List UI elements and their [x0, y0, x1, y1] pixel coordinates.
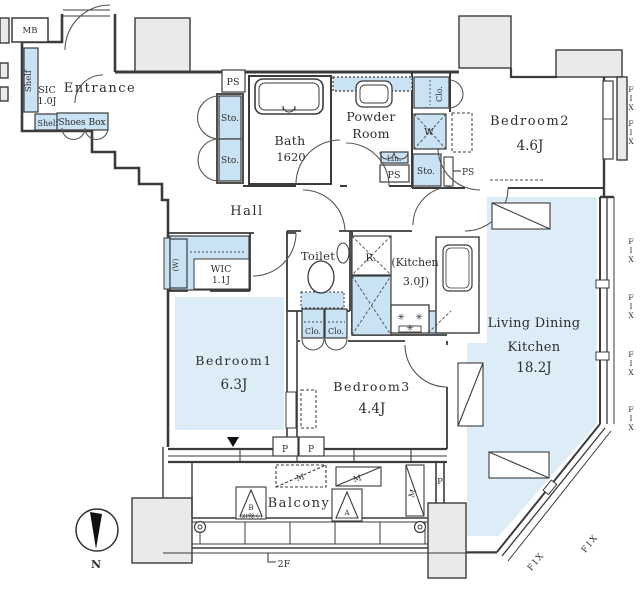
powder-room-label-2: Room: [352, 126, 390, 141]
bedroom3-label: Bedroom3: [333, 379, 410, 394]
wall-strip-right: [617, 77, 627, 160]
column-balcony-right: [428, 503, 466, 578]
pipe-space-1-label: PS: [227, 77, 240, 88]
hall-corridor-door-arc: [303, 190, 345, 232]
kitchen-label-1: (Kitchen: [391, 256, 438, 269]
storage-3-label: Sto.: [417, 167, 435, 177]
kitchen-label-2: 3.0J): [403, 275, 429, 288]
pipe-space-3-label: PS: [462, 168, 474, 178]
balcony-b-note: (2F除く): [240, 512, 263, 520]
wall-stub-left-1: [0, 18, 9, 43]
ldk-window-joint-1: [596, 280, 609, 288]
bedroom1-size-label: 6.3J: [221, 377, 248, 393]
wall-stub-left-3: [0, 87, 8, 101]
bedroom2-dashed-area: [452, 113, 472, 152]
pillar-3-label: P: [437, 477, 443, 487]
fix-label-ldk-1: FIX: [628, 237, 634, 264]
bath-size-label: 1620: [276, 150, 305, 164]
ldk-window-joint-2: [596, 352, 609, 360]
sic-label: SIC: [38, 85, 56, 96]
corridor-powder-door-arc: [413, 187, 451, 225]
bedroom2-closet-door-arc: [449, 80, 463, 108]
pipe-space-2-label: PS: [388, 170, 401, 181]
bedroom2-closet-label: Clo.: [435, 86, 444, 102]
column-top-right-edge: [556, 50, 622, 77]
floor-label-bracket: [268, 553, 276, 562]
kitchen-sink-inner: [446, 248, 469, 288]
sliding-door-pocket: [286, 392, 296, 428]
wall-stub-left-2: [0, 63, 8, 78]
column-top-right: [459, 16, 511, 68]
toilet-label: Toilet: [301, 249, 335, 263]
refrigerator-label: R.: [365, 252, 376, 264]
balcony-label: Balcony: [268, 496, 331, 511]
ldk-size-label: 18.2J: [516, 360, 551, 376]
storage-2-label: Sto.: [221, 156, 239, 166]
compass: [76, 509, 118, 551]
fix-label-diag-1: FIX: [526, 550, 547, 573]
burner-icon: ✳: [397, 313, 405, 323]
washer-label: W: [424, 127, 434, 138]
toilet-tank: [301, 292, 344, 308]
bathtub-inner: [259, 83, 319, 110]
ldk-label-1: Living Dining: [488, 316, 581, 331]
bedroom2-size-label: 4.6J: [517, 138, 544, 154]
burner-icon: ✳: [406, 324, 414, 334]
triangle-marker-icon: [227, 437, 239, 447]
fix-label-bedroom2-2: FIX: [628, 119, 634, 146]
bedroom3-closet-door-arcs: [302, 339, 347, 350]
storage-door-arcs: [198, 96, 219, 181]
fix-label-diag-2: FIX: [580, 532, 601, 555]
floor-2f-label: 2F: [278, 559, 291, 570]
railing-wheel-right: [415, 522, 426, 533]
toilet-hand-basin: [337, 243, 349, 263]
shelf-vertical-label: Shelf: [24, 69, 34, 92]
column-top-left: [135, 18, 190, 72]
washbasin-inner: [360, 85, 388, 103]
linen-label: Lin.: [387, 154, 402, 163]
bedroom3-size-label: 4.4J: [359, 401, 386, 417]
wic-size-label: 1.1J: [212, 276, 230, 286]
bedroom2-label: Bedroom2: [490, 114, 570, 129]
bath-label: Bath: [275, 133, 306, 148]
floor-plan-page: MB Shelf SIC 1.0J Entrance Shelf Shoes B…: [0, 0, 640, 591]
mb-label: MB: [23, 26, 38, 36]
fix-label-ldk-3: FIX: [628, 350, 634, 377]
ldk-label-2: Kitchen: [508, 340, 561, 355]
wic-label: WIC: [211, 264, 232, 275]
bedroom1-label: Bedroom1: [195, 353, 272, 368]
toilet-bowl: [308, 261, 334, 293]
entrance-label: Entrance: [64, 81, 136, 96]
powder-room-label-1: Powder: [346, 109, 395, 124]
fix-label-ldk-4: FIX: [628, 405, 634, 432]
bedroom3-closet-1-label: Clo.: [305, 327, 321, 336]
bedroom3-dashed-area: [301, 390, 316, 428]
wic-window-label: (W): [172, 258, 180, 271]
bedroom3-closet-2-label: Clo.: [328, 327, 344, 336]
shoes-box-label: Shoes Box: [58, 118, 105, 128]
pillar-1-label: P: [282, 445, 288, 455]
burner-icon: ✳: [415, 313, 423, 323]
bedroom1-door-arc: [253, 233, 296, 276]
balcony-a-label: A: [343, 509, 350, 517]
balcony-b-label: B: [248, 504, 253, 512]
hall-label: Hall: [230, 204, 263, 219]
pillar-2-label: P: [308, 445, 314, 455]
entrance-door-arc: [65, 5, 110, 50]
bedroom2-fix-window: [603, 81, 613, 159]
storage-1-label: Sto.: [221, 114, 239, 124]
compass-north-label: N: [91, 558, 101, 571]
floor-plan-drawing: MB Shelf SIC 1.0J Entrance Shelf Shoes B…: [0, 0, 640, 591]
fix-label-ldk-2: FIX: [628, 293, 634, 320]
shelf-horizontal-label: Shelf: [38, 119, 60, 128]
sic-size-label: 1.0J: [38, 96, 57, 107]
bedroom3-door-arc: [405, 345, 447, 387]
fix-label-bedroom2-1: FIX: [628, 85, 634, 112]
